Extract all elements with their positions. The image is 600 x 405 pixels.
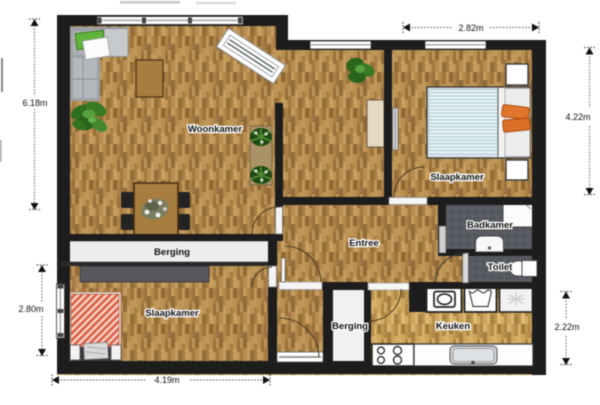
svg-text:Berging: Berging	[332, 321, 368, 332]
svg-text:4.19m: 4.19m	[154, 375, 179, 385]
svg-text:Woonkamer: Woonkamer	[188, 124, 243, 135]
svg-text:2.80m: 2.80m	[18, 304, 43, 314]
svg-text:6.18m: 6.18m	[22, 98, 47, 108]
svg-text:4.22m: 4.22m	[565, 112, 590, 122]
svg-text:Badkamer: Badkamer	[467, 220, 513, 231]
svg-text:Toilet: Toilet	[488, 262, 513, 273]
svg-text:Berging: Berging	[154, 247, 190, 258]
svg-text:Slaapkamer: Slaapkamer	[145, 308, 199, 319]
svg-text:2.22m: 2.22m	[554, 322, 579, 332]
svg-text:Keuken: Keuken	[436, 321, 471, 332]
svg-text:Entree: Entree	[349, 238, 379, 249]
svg-text:Slaapkamer: Slaapkamer	[430, 172, 484, 183]
svg-text:2.82m: 2.82m	[458, 23, 483, 33]
